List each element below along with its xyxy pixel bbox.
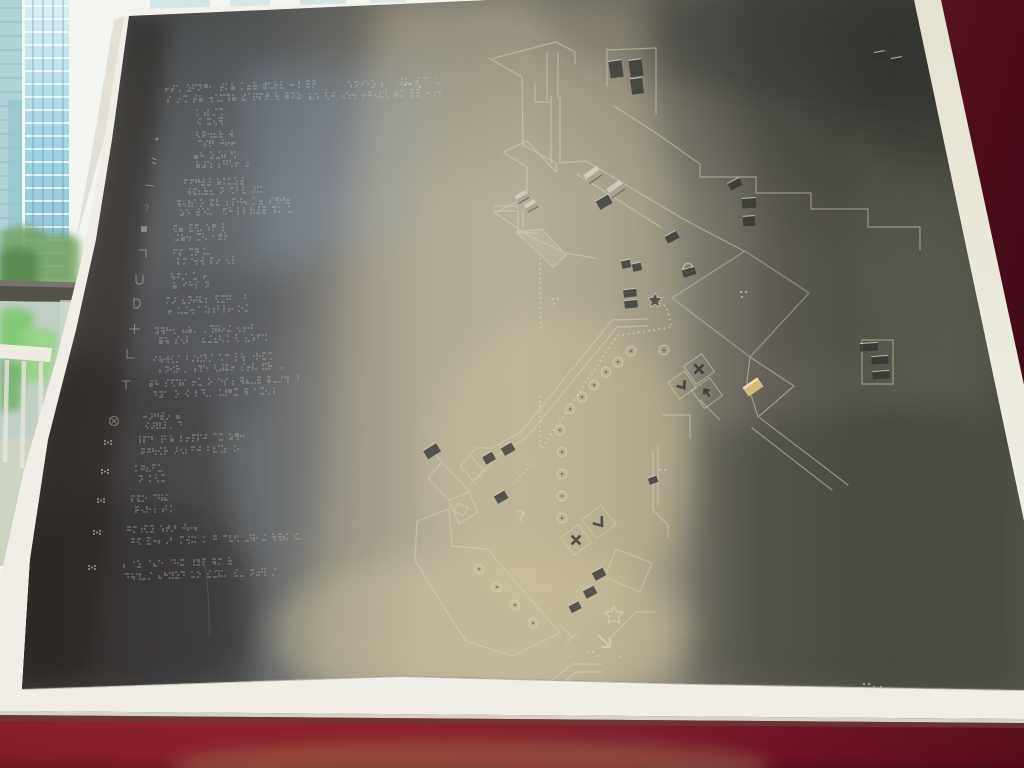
svg-text:?: ? [144, 203, 149, 213]
